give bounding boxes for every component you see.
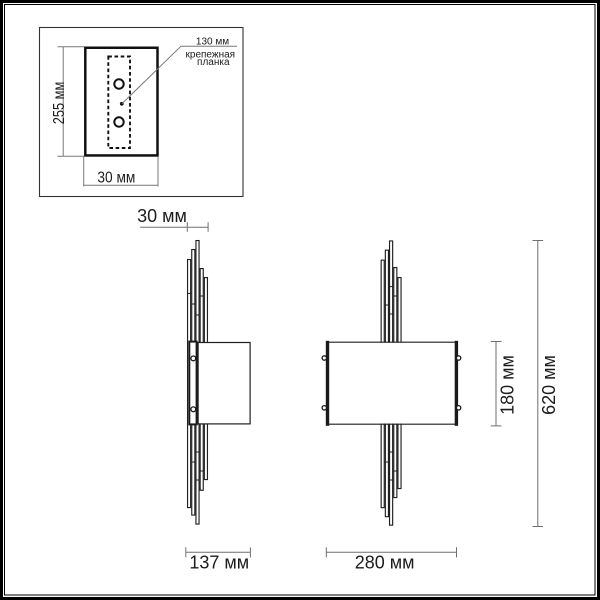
svg-text:255 мм: 255 мм [51,82,68,125]
svg-text:620 мм: 620 мм [539,355,559,415]
svg-text:280 мм: 280 мм [355,553,415,573]
svg-text:30 мм: 30 мм [137,206,187,226]
svg-text:137 мм: 137 мм [189,553,249,573]
svg-text:130 мм: 130 мм [196,37,229,48]
svg-text:30 мм: 30 мм [97,170,135,187]
svg-text:180 мм: 180 мм [497,355,517,415]
svg-text:планка: планка [197,57,230,68]
